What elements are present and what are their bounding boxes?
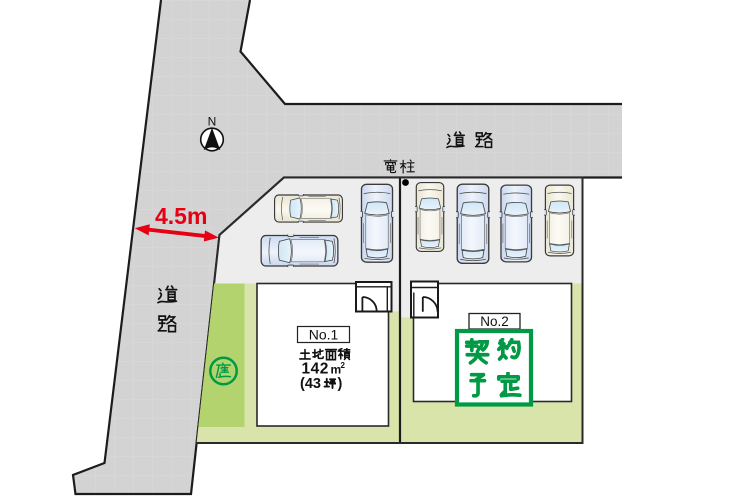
svg-text:No.1: No.1 xyxy=(309,327,339,343)
svg-text:): ) xyxy=(338,376,343,392)
svg-text:N: N xyxy=(208,115,217,129)
svg-text:142: 142 xyxy=(302,361,329,378)
svg-text:No.2: No.2 xyxy=(480,314,509,329)
svg-text:(43: (43 xyxy=(300,376,321,392)
svg-text:4.5m: 4.5m xyxy=(155,203,207,229)
svg-text:2: 2 xyxy=(341,361,346,370)
